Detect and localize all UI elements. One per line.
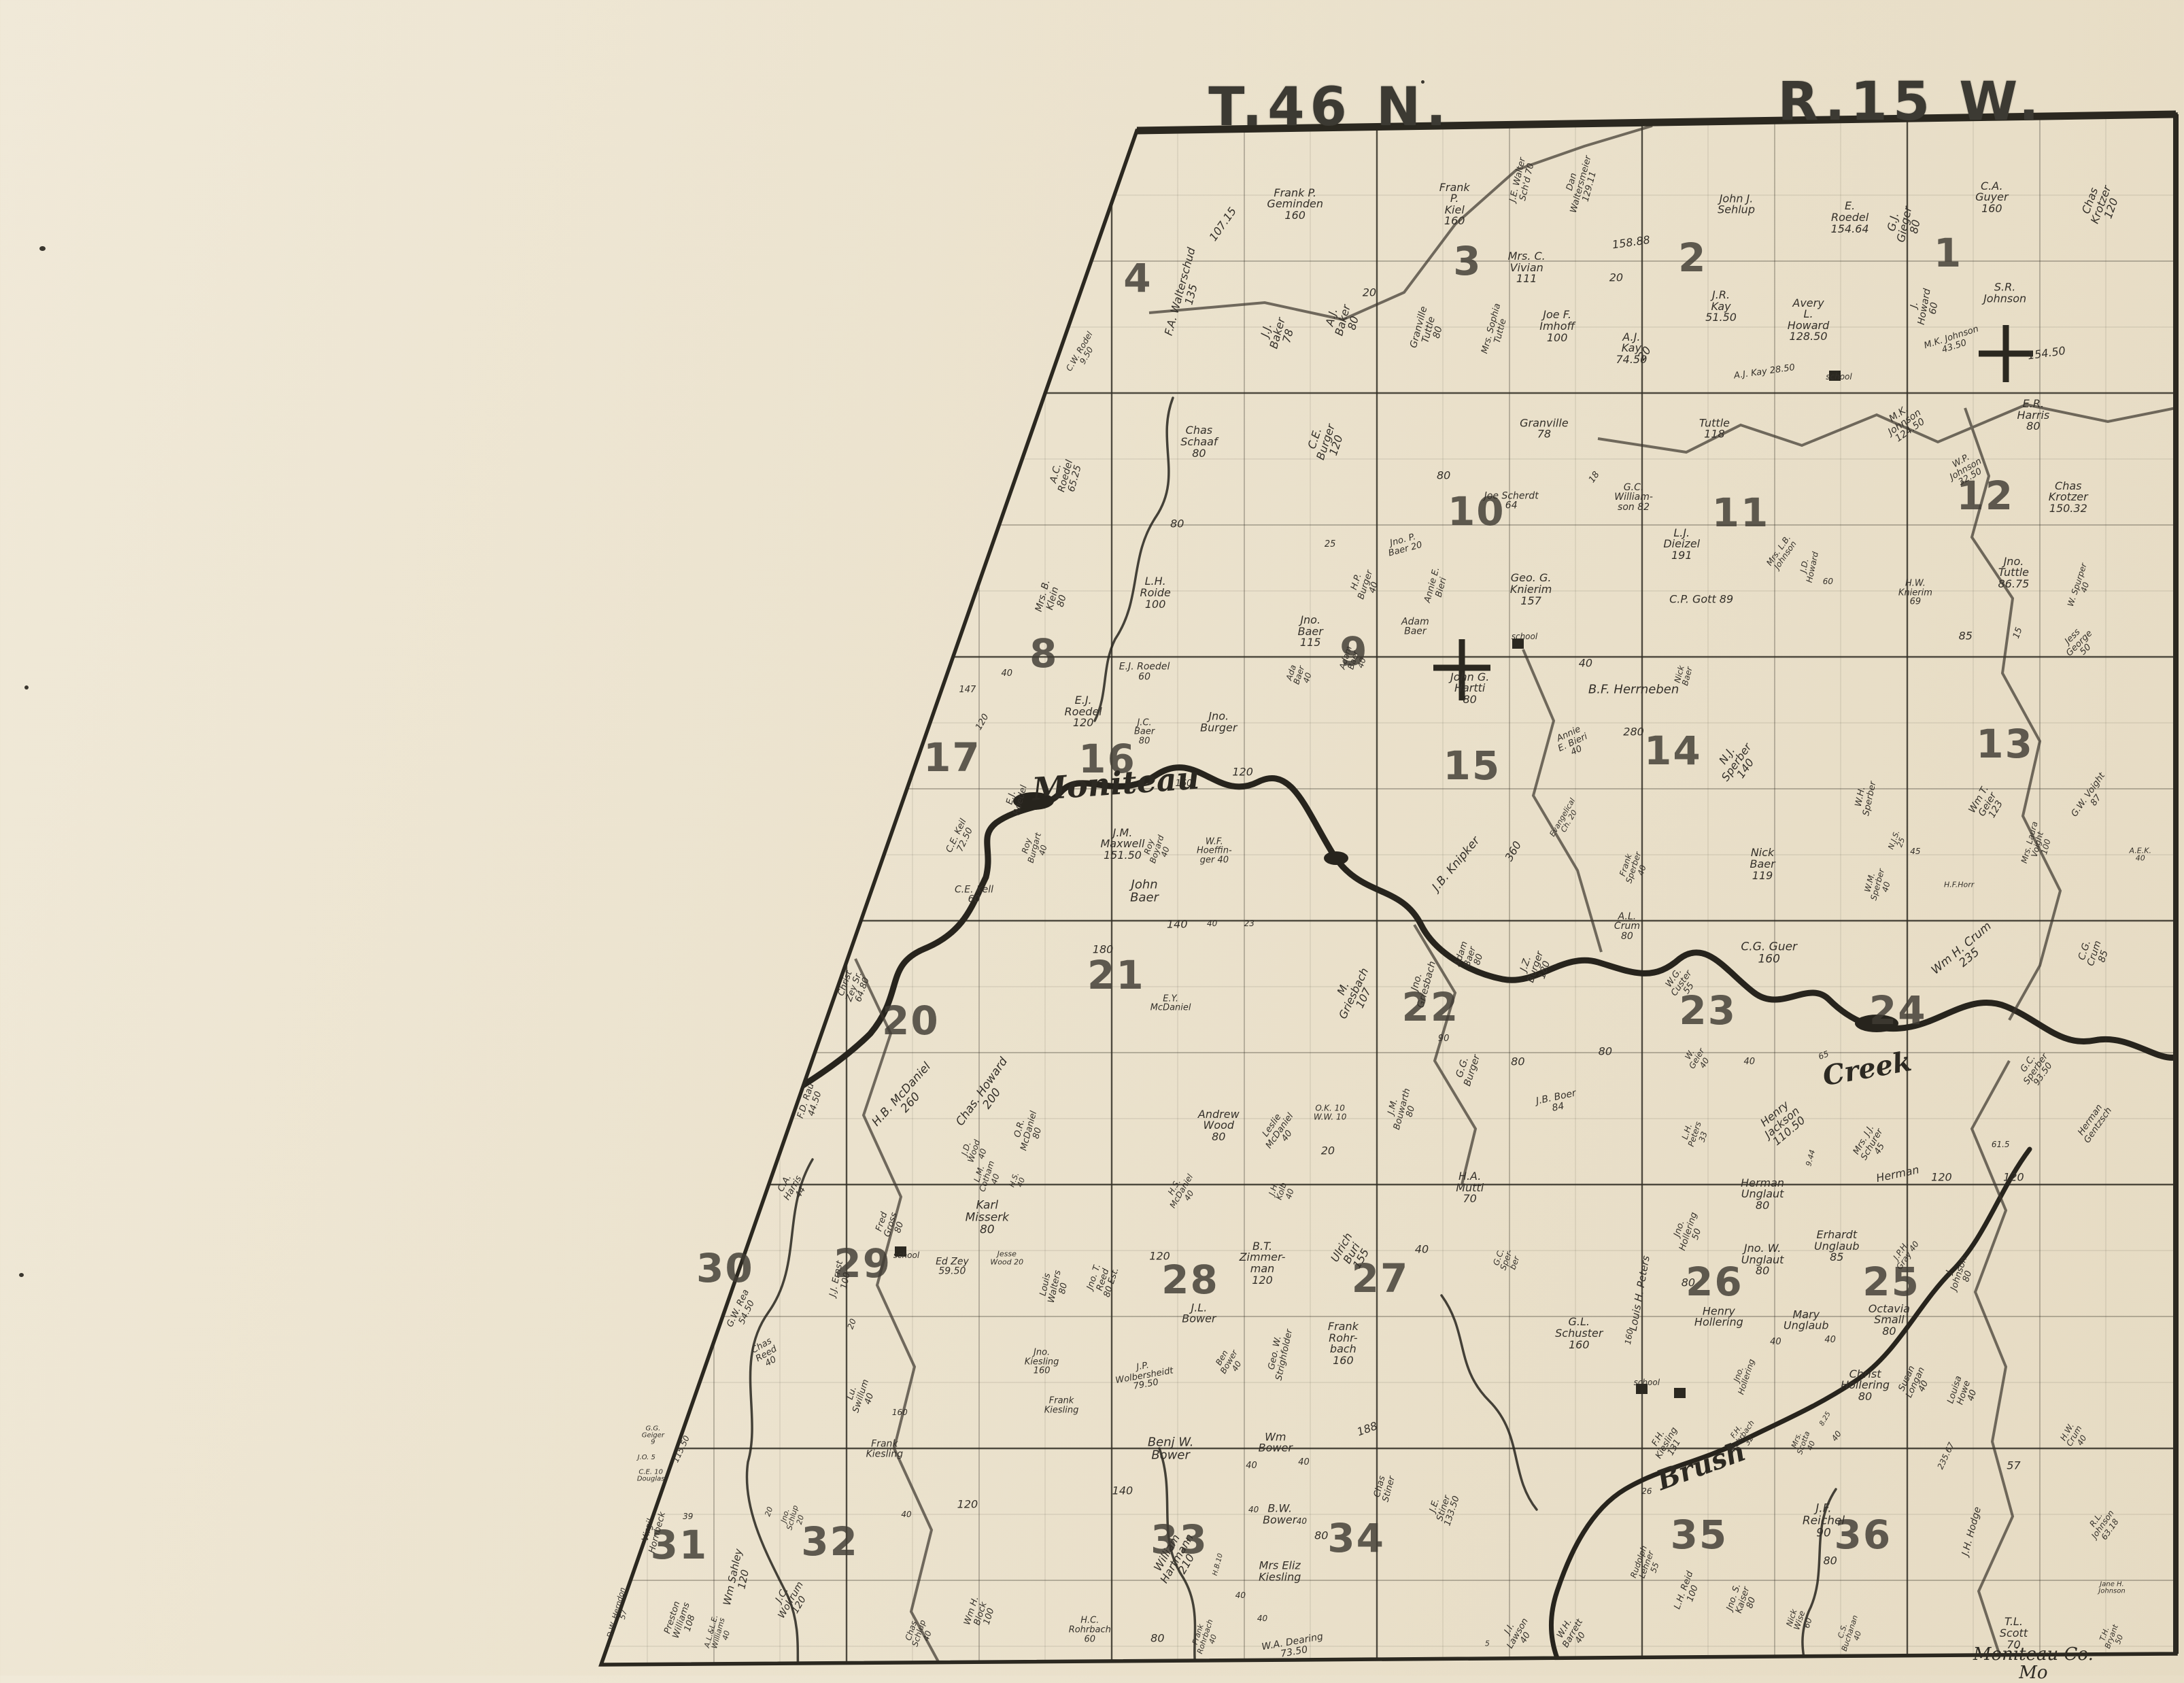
parcel-label: H.W. Crum 40 (2058, 1420, 2092, 1452)
parcel-label: E.R. Harris 80 (2017, 398, 2049, 432)
parcel-label: 40 (1298, 1458, 1310, 1467)
parcel-label: Wm T. Geier 123 (1967, 784, 2007, 824)
parcel-label: Erhardt Unglaub 85 (1814, 1229, 1860, 1263)
parcel-label: C.E. Keil 72.50 (945, 817, 977, 857)
parcel-label: 40 (1001, 669, 1012, 679)
parcel-label: Tuttle 118 (1699, 418, 1730, 440)
section-number: 24 (1869, 990, 1927, 1031)
section-number: 15 (1444, 745, 1501, 786)
section-number: 3 (1453, 241, 1482, 282)
section-number: 32 (801, 1521, 859, 1562)
section-number: 17 (923, 737, 981, 778)
parcel-label: 40 (1579, 658, 1592, 669)
parcel-label: 20 (1321, 1145, 1335, 1157)
parcel-label: J.E. Walter Sch'd 70 (1508, 157, 1536, 205)
parcel-label: Frank Sperber 40 (1616, 849, 1650, 887)
parcel-label: 80 (1599, 1047, 1612, 1058)
parcel-label: J.P. Wolbersheidt 79.50 (1113, 1357, 1176, 1395)
parcel-label: Wm H. Block 100 (963, 1595, 998, 1632)
parcel-label: Jno. Baer 115 (1298, 615, 1323, 649)
parcel-label: J.I. Lawson 40 (1498, 1612, 1539, 1655)
section-number: 14 (1644, 730, 1702, 771)
parcel-label: 188 (1356, 1421, 1379, 1438)
parcel-label: Frank P. Geminden 160 (1267, 188, 1323, 222)
parcel-label: O.K. 10 W.W. 10 (1314, 1104, 1347, 1121)
parcel-label: J.R. Kay 51.50 (1705, 290, 1737, 324)
parcel-label: 120 (1232, 767, 1253, 779)
parcel-label: Frank Kiesling (1044, 1397, 1079, 1415)
parcel-label: G.J. Gieger 80 (1884, 203, 1925, 245)
parcel-label: 120 (957, 1499, 978, 1510)
parcel-label: Ed Zey 59.50 (936, 1257, 969, 1276)
parcel-label: Frank Rohrbach 40 (1189, 1616, 1223, 1658)
parcel-label: 60 (1823, 577, 1833, 585)
parcel-label: 40 (1297, 1517, 1307, 1525)
parcel-label: Mrs. J.J. Schurer 45 (1851, 1123, 1892, 1166)
parcel-label: A.J. Kay 28.50 (1734, 363, 1796, 381)
parcel-label: B.T. Zimmer- man 120 (1240, 1241, 1286, 1287)
section-number: 28 (1161, 1259, 1219, 1300)
parcel-label: J. Howard 60 (1907, 286, 1942, 328)
parcel-label: W.H. Sperber (1852, 779, 1877, 817)
parcel-label: Henry Hollering (1694, 1306, 1743, 1328)
parcel-label: W.M. Sperber 40 (1862, 866, 1894, 904)
parcel-label: G.C. Sper- ber (1491, 1246, 1522, 1274)
parcel-label: 160 (1624, 1329, 1635, 1346)
parcel-label: A.E.K. 40 (2130, 847, 2151, 862)
parcel-label: Louis Walters 80 (1038, 1268, 1072, 1306)
parcel-label: Rudolph Lehner 55 (1629, 1545, 1665, 1585)
parcel-label: John J. Sehlup (1718, 193, 1755, 216)
parcel-label: Herman Unglaut 80 (1741, 1178, 1784, 1212)
parcel-label: Chas Schlup 40 (903, 1616, 936, 1650)
parcel-label: 40 (1824, 1336, 1836, 1345)
parcel-label: 140 (1112, 1486, 1133, 1497)
section-number: 1 (1934, 233, 1962, 273)
parcel-label: W.F. Hoeffin- ger 40 (1197, 837, 1232, 865)
parcel-label: Adam Baer (1401, 617, 1429, 636)
parcel-label: 80 (1150, 1633, 1164, 1644)
parcel-label: M.K. Johnson 124.50 (1881, 399, 1928, 445)
section-number: 35 (1671, 1514, 1728, 1555)
parcel-label: 40 (1744, 1057, 1756, 1067)
parcel-label: 40 (1770, 1338, 1781, 1347)
parcel-label: C.P. Gott 89 (1669, 594, 1733, 606)
parcel-label: Annie E. Bieri (1424, 566, 1451, 607)
parcel-label: 39 (683, 1512, 693, 1520)
parcel-label: 235.67 (1936, 1442, 1956, 1471)
parcel-label: C.A. Harris 44 (774, 1170, 812, 1206)
parcel-label: J.D. Howard (1797, 549, 1820, 583)
parcel-label: J.C. Wolfrum 120 (768, 1575, 814, 1625)
parcel-label: Chas Stiner (1372, 1473, 1397, 1503)
parcel-label: G.L. Schuster 160 (1555, 1316, 1603, 1350)
parcel-label: 26 (1641, 1487, 1652, 1495)
parcel-label: A.J. Baker 80 (1323, 301, 1363, 340)
parcel-label: W.H. Barrett 40 (1553, 1613, 1592, 1654)
parcel-label: Jno. Tuttle 86.75 (1998, 556, 2030, 590)
parcel-label: W.A. Dearing 73.50 (1261, 1632, 1325, 1663)
parcel-label: E.Y. McDaniel (1150, 994, 1191, 1013)
parcel-label: C.S. Buchanan 40 (1833, 1612, 1867, 1655)
parcel-label: H.S. McDaniel 40 (1161, 1169, 1202, 1214)
parcel-label: J.B. Knipker (1431, 835, 1482, 894)
parcel-label: W. Spurper 40 (2066, 562, 2096, 611)
parcel-label: A.C. Roedel 65.25 (1047, 456, 1085, 496)
creek-label: Creek (1821, 1047, 1914, 1091)
parcel-label: 40 (1235, 1591, 1246, 1599)
parcel-label: Andrew Wood 80 (1198, 1109, 1240, 1143)
parcel-label: Louisa Howe 40 (1946, 1374, 1981, 1410)
parcel-label: E.J. Roedel (1003, 782, 1029, 816)
parcel-label: 80 (1682, 1278, 1695, 1289)
parcel-label: 40 (1207, 919, 1217, 927)
parcel-label: 160 (892, 1408, 908, 1416)
parcel-label: Joe F. Imhoff 100 (1539, 310, 1575, 344)
parcel-label: D.W. Herndon 57 (606, 1586, 634, 1640)
parcel-label: Karl Misserk 80 (966, 1200, 1009, 1236)
parcel-label: Ben Bower 40 (1212, 1345, 1247, 1380)
parcel-label: Annie E. Bieri 40 (1552, 723, 1592, 761)
parcel-label: Susan Longan 40 (1896, 1362, 1934, 1404)
parcel-label: Wm H. Crum 235 (1930, 921, 2002, 987)
parcel-label: C.G. Guer 160 (1741, 941, 1797, 965)
parcel-label: Granville 78 (1520, 418, 1569, 440)
parcel-label: Mrs. B. Klein 80 (1034, 579, 1072, 618)
parcel-label: Octavia Small 80 (1869, 1304, 1910, 1338)
parcel-label: Wm Bower (1259, 1431, 1293, 1454)
parcel-label: 140 (1167, 919, 1188, 931)
parcel-label: H.B.10 (1212, 1553, 1225, 1577)
parcel-label: Adam Baer 80 (1453, 940, 1487, 973)
parcel-label: Mrs. Scotta 40 (1789, 1427, 1819, 1458)
parcel-label: A.L. Crum 80 (1614, 912, 1640, 942)
parcel-label: N.J. Sperber 140 (1710, 735, 1762, 789)
parcel-label: H.A. Mutti 70 (1456, 1171, 1484, 1205)
parcel-label: Louis H. Peters (1628, 1255, 1652, 1332)
parcel-label: J.H. Hodge (1961, 1506, 1983, 1557)
parcel-label: Jno. Kiesling 160 (1025, 1348, 1059, 1376)
parcel-label: Nick Baer (1673, 664, 1694, 686)
parcel-label: 107.15 (1208, 205, 1239, 243)
parcel-label: H.B. McDaniel 260 (870, 1061, 942, 1137)
parcel-label: Mrs Eliz Kiesling (1259, 1561, 1301, 1583)
parcel-label: Herman Gentzsch (2075, 1100, 2114, 1144)
parcel-label: A.J. Kay 74.50 (1616, 332, 1647, 366)
parcel-label: Evangelical Ch. 20 (1548, 797, 1583, 842)
parcel-label: Avery L. Howard 128.50 (1788, 297, 1829, 343)
parcel-label: Chas Schaaf 80 (1180, 426, 1217, 460)
parcel-label: O.R. McDaniel 80 (1010, 1108, 1048, 1154)
parcel-label: school (1634, 1378, 1660, 1387)
parcel-label: Frank Kiesling (866, 1440, 904, 1459)
parcel-label: 115.50 (672, 1435, 692, 1464)
parcel-label: E.J. Roedel 120 (1065, 695, 1102, 729)
parcel-label: 80 (1314, 1531, 1328, 1542)
parcel-label: Jesse Wood 20 (990, 1251, 1023, 1266)
parcel-label: L.J. Dieizel 191 (1663, 528, 1700, 562)
parcel-label: Wm Sahley 120 (722, 1548, 755, 1608)
parcel-label: Mary Unglaub (1784, 1309, 1829, 1331)
parcel-label: Preston Williams 108 (662, 1598, 700, 1642)
parcel-label: C.W. Rodel 9.50 (1065, 330, 1102, 377)
section-number: 11 (1712, 492, 1770, 533)
parcel-label: H.W. Knierim 69 (1898, 579, 1932, 607)
parcel-label: L.H. Peters 33 (1679, 1118, 1711, 1151)
parcel-label: 80 (1823, 1556, 1837, 1567)
parcel-label: B.F. Herrneben (1588, 684, 1679, 697)
parcel-label: Jno. Hollering 50 (1669, 1208, 1708, 1255)
parcel-label: 9.44 (1805, 1149, 1816, 1167)
parcel-label: school (1826, 373, 1852, 381)
parcel-label: 5 (1485, 1639, 1490, 1647)
parcel-label: C.E. Kell 60 (955, 885, 993, 904)
parcel-label: H.S. 40 (1008, 1172, 1027, 1191)
parcel-label: Nick Wise 60 (1784, 1607, 1814, 1633)
parcel-label: J.M. Bouwarth 80 (1383, 1085, 1420, 1134)
parcel-label: Jno. W. Unglaut 80 (1741, 1243, 1784, 1277)
parcel-label: 40 (1830, 1429, 1843, 1443)
parcel-label: 8.25 (1819, 1411, 1832, 1427)
parcel-label: Herman (1875, 1164, 1920, 1185)
parcel-label: Jno. S. Kaiser 80 (1726, 1582, 1760, 1617)
parcel-label: 57 (2007, 1461, 2020, 1472)
parcel-label: Jno. Burger (1200, 711, 1237, 733)
parcel-label: M.K. Johnson 43.50 (1923, 324, 1983, 359)
section-number: 13 (1976, 724, 2034, 764)
parcel-label: 158.88 (1611, 235, 1651, 251)
parcel-label: 61.5 (1992, 1140, 2010, 1149)
label-layer: 4321891011121716151413202122232430292827… (0, 0, 2184, 1676)
parcel-label: N.J.S. 25 (1888, 829, 1909, 853)
parcel-label: C.E. Burger 120 (1304, 420, 1348, 465)
section-number: 34 (1327, 1518, 1385, 1559)
parcel-label: G.C. Sperber 93.50 (2014, 1047, 2057, 1091)
parcel-label: Jess George 50 (2058, 622, 2100, 664)
parcel-label: John Baer (1130, 879, 1159, 904)
county-credit: Moniteau Co. Mo (1958, 1646, 2109, 1682)
section-number: 21 (1087, 955, 1145, 996)
parcel-label: H.C. Rohrbach 60 (1069, 1616, 1111, 1644)
parcel-label: Benj W. Bower (1148, 1437, 1194, 1462)
parcel-label: Mrs. C. Vivian 111 (1508, 251, 1546, 285)
parcel-label: G.W. Voight 87 (2070, 771, 2114, 823)
parcel-label: Mrs. Sophia Tuttle (1480, 303, 1512, 357)
parcel-label: G.W. Rea 54.50 (726, 1288, 760, 1332)
parcel-label: 15 (2012, 626, 2024, 640)
parcel-label: 23 (1244, 919, 1255, 927)
parcel-label: John G. Hartti 80 (1450, 672, 1489, 706)
parcel-label: G.G. Geiger 9 (642, 1425, 664, 1446)
paper-speck (19, 1273, 24, 1277)
parcel-label: Joe Scherdt 64 (1484, 491, 1539, 511)
parcel-label: J.Z. Burger 180 (1516, 947, 1554, 987)
parcel-label: 20 (764, 1506, 774, 1517)
parcel-label: J.B. Boer 84 (1535, 1089, 1579, 1117)
parcel-label: J.L. Bower (1182, 1302, 1216, 1325)
parcel-label: 154.50 (2027, 345, 2066, 362)
parcel-label: S.R. Johnson (1983, 282, 2026, 305)
parcel-label: 120 (1149, 1251, 1170, 1263)
parcel-label: 20 (846, 1317, 857, 1330)
parcel-label: Chas Krotzer 150.32 (2049, 481, 2088, 515)
parcel-label: Roy Burgart 40 (1019, 830, 1052, 866)
parcel-label: Mrs. L.B. Johnson (1765, 534, 1799, 573)
parcel-label: Frank P. Kiel 160 (1439, 182, 1470, 227)
parcel-label: E. Roedel 154.64 (1831, 201, 1869, 235)
parcel-label: Ada Baer 40 (1284, 662, 1314, 688)
parcel-label: Geo. W. Strighfolder (1265, 1327, 1294, 1381)
parcel-label: J.J. Baker 78 (1257, 313, 1298, 353)
parcel-label: 280 (1623, 726, 1644, 738)
parcel-label: 25 (1325, 540, 1336, 549)
parcel-label: 147 (959, 685, 976, 695)
parcel-label: school (1512, 632, 1537, 641)
parcel-label: G.G. Burger (1453, 1051, 1482, 1087)
paper-speck (39, 246, 46, 251)
parcel-label: J.M. Maxwell 151.50 (1101, 828, 1145, 862)
parcel-label: 40 (1246, 1461, 1257, 1471)
parcel-label: Granville Tuttle 80 (1408, 306, 1448, 355)
parcel-label: 40 (1415, 1244, 1429, 1256)
parcel-label: Chas Reed 40 (750, 1336, 783, 1372)
parcel-label: 20 (1363, 288, 1376, 299)
parcel-label: 80 (1170, 519, 1184, 530)
parcel-label: Roy Boyard 40 (1141, 832, 1174, 867)
parcel-label: F.A. Walterschud 135 (1163, 247, 1209, 340)
parcel-label: 40 (1248, 1506, 1259, 1514)
creek-label: Moniteau (1031, 762, 1201, 806)
paper-speck (1421, 80, 1424, 84)
parcel-label: Frank Rohr- bach 160 (1328, 1321, 1359, 1367)
parcel-label: Christ Hollering 80 (1841, 1369, 1890, 1403)
section-number: 4 (1123, 258, 1152, 299)
parcel-label: Jane H. Johnson (2098, 1581, 2125, 1595)
parcel-label: H.F.Horr (1944, 881, 1974, 888)
section-number: 8 (1029, 633, 1058, 674)
parcel-label: Mrs. Laura Voight 100 (2020, 821, 2055, 869)
parcel-label: 80 (1511, 1057, 1524, 1068)
plat-map: T.46 N. R.15 W. 432189101112171615141320… (0, 0, 2184, 1676)
section-number: 2 (1678, 237, 1707, 278)
parcel-label: Christ Zey Sr. 64.80 (836, 968, 872, 1006)
parcel-label: 120 (974, 713, 991, 732)
parcel-label: 80 (1437, 470, 1450, 481)
parcel-label: W. Geier 40 (1680, 1043, 1713, 1075)
parcel-label: A.L.&L.E. Williams 40 (703, 1614, 734, 1653)
parcel-label: 45 (1910, 847, 1920, 855)
parcel-label: Lu. Swillum 40 (842, 1375, 878, 1416)
parcel-label: Nick Baer 119 (1750, 847, 1775, 881)
parcel-label: 120 (1931, 1172, 1952, 1184)
parcel-label: 18 (1587, 471, 1601, 485)
parcel-label: J. Johnson 80 (1941, 1253, 1977, 1294)
parcel-label: Geo. G. Knierim 157 (1510, 573, 1552, 607)
parcel-label: L.H. Roide 100 (1140, 576, 1170, 610)
paper-speck (24, 685, 29, 690)
parcel-label: L.H. Reid 100 (1673, 1570, 1703, 1614)
parcel-label: J.E. Stiner 133.50 (1426, 1489, 1462, 1527)
parcel-label: Jno. T. Reed 80 Est. (1085, 1261, 1121, 1299)
parcel-label: J.F. Reichel 90 (1803, 1503, 1845, 1540)
parcel-label: Dan Waltersmeier 129.11 (1560, 152, 1603, 216)
parcel-label: G.C. William- son 82 (1614, 483, 1653, 513)
parcel-label: 90 (1438, 1034, 1450, 1044)
parcel-label: Leslie McDaniel 40 (1257, 1106, 1303, 1155)
parcel-label: M. Griesbach 107 (1327, 962, 1381, 1025)
parcel-label: Fred Gross 80 (874, 1208, 908, 1241)
parcel-label: F.D. Rau 44.50 (796, 1083, 825, 1123)
parcel-label: J.H. Kolb 40 (1267, 1179, 1297, 1204)
parcel-label: J.O. 5 (638, 1454, 655, 1461)
parcel-label: Jno. P. Baer 20 (1385, 531, 1423, 558)
parcel-label: 20 (1609, 273, 1623, 284)
parcel-label: school (893, 1251, 919, 1259)
parcel-label: H.P. Burger 40 (1347, 566, 1382, 603)
section-number: 30 (696, 1248, 754, 1289)
parcel-label: J.C. Baer 80 (1134, 718, 1155, 746)
parcel-label: J.J. Ernst 100 (828, 1260, 854, 1299)
parcel-label: 85 (1959, 631, 1973, 643)
parcel-label: Jno. Hollering (1729, 1355, 1756, 1395)
parcel-label: Chas Krotzer 120 (2079, 180, 2124, 229)
parcel-label: B.W. Bower (1263, 1503, 1297, 1526)
section-number: 25 (1862, 1261, 1920, 1302)
parcel-label: E.J. Roedel 60 (1119, 662, 1170, 682)
parcel-label: 360 (1503, 839, 1524, 863)
parcel-label: 120 (2003, 1172, 2024, 1184)
parcel-label: Henry Jackson 110.50 (1756, 1096, 1809, 1149)
parcel-label: C.E. 10 Douglas (637, 1469, 665, 1483)
parcel-label: 40 (901, 1510, 911, 1518)
section-number: 20 (882, 1000, 940, 1040)
parcel-label: C.A. Guyer 160 (1975, 181, 2008, 215)
parcel-label: 40 (1257, 1614, 1267, 1622)
parcel-label: 180 (1093, 945, 1114, 956)
parcel-label: C.G. Crum 85 (2077, 936, 2113, 970)
parcel-label: Chas. Howard 200 (954, 1056, 1020, 1136)
parcel-label: R.L. Johnson 63.18 (2083, 1504, 2123, 1545)
